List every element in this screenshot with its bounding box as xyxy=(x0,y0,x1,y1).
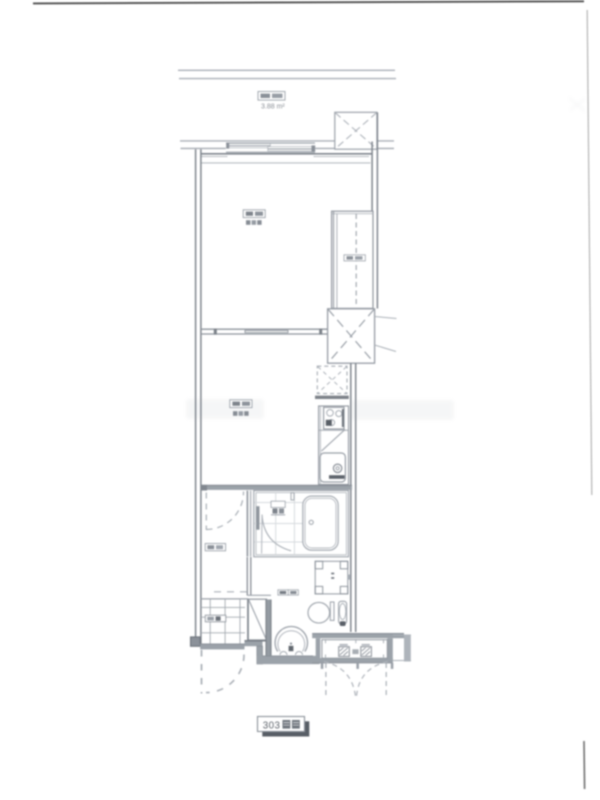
svg-text:303: 303 xyxy=(263,720,281,731)
svg-text:3.88 m²: 3.88 m² xyxy=(261,104,285,111)
